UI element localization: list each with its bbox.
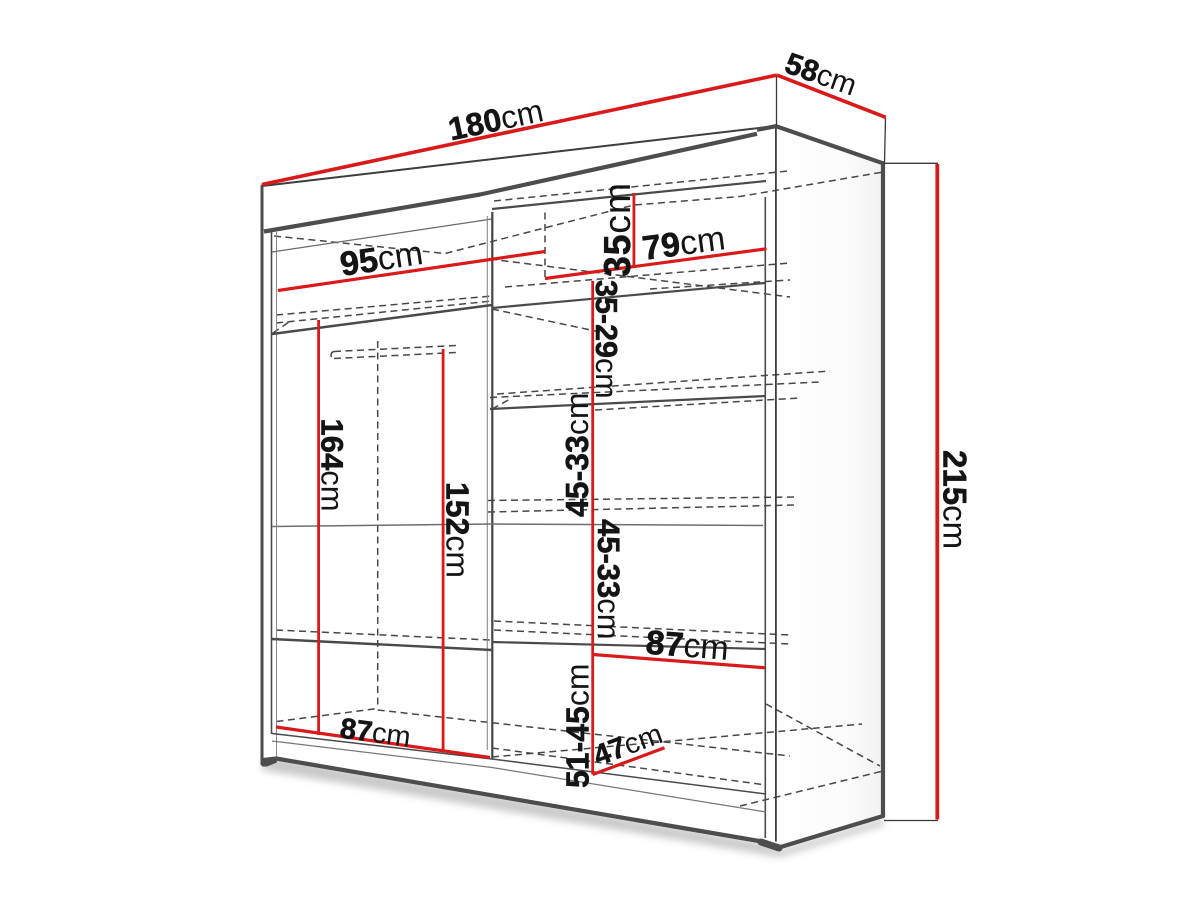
svg-text:35cm: 35cm bbox=[596, 182, 638, 277]
svg-text:35-29cm: 35-29cm bbox=[589, 280, 623, 399]
svg-text:152cm: 152cm bbox=[440, 482, 476, 578]
svg-text:45-33cm: 45-33cm bbox=[559, 393, 595, 518]
svg-text:215cm: 215cm bbox=[937, 450, 974, 549]
svg-text:51-45cm: 51-45cm bbox=[560, 664, 596, 789]
svg-text:164cm: 164cm bbox=[315, 419, 350, 512]
svg-text:87cm: 87cm bbox=[644, 624, 730, 668]
svg-text:45-33cm: 45-33cm bbox=[591, 519, 626, 640]
